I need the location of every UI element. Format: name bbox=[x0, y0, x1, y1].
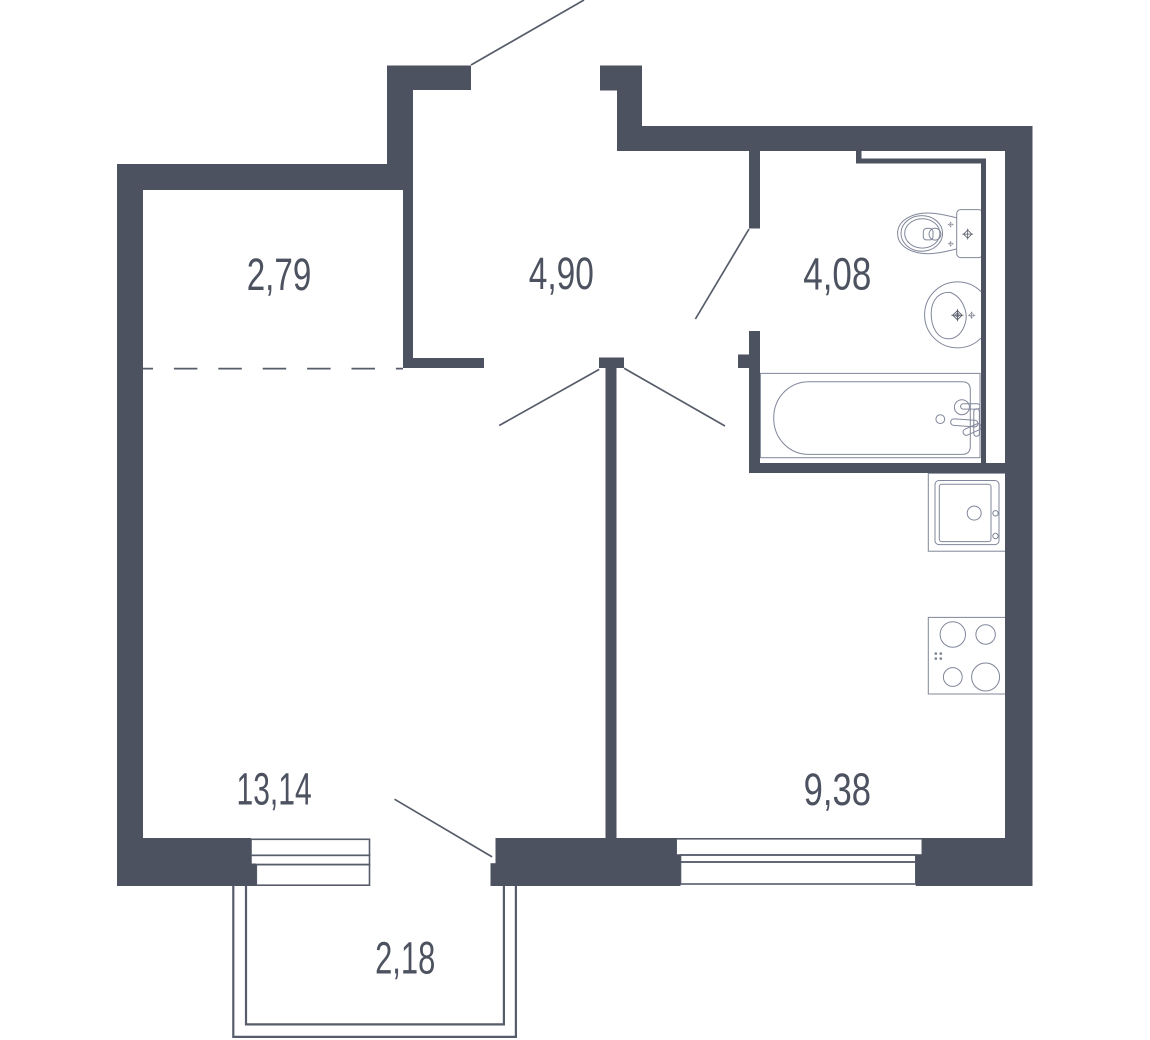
svg-text:4,90: 4,90 bbox=[529, 248, 594, 299]
svg-text:2,79: 2,79 bbox=[247, 249, 312, 300]
svg-text:9,38: 9,38 bbox=[804, 764, 871, 815]
svg-text:13,14: 13,14 bbox=[237, 764, 312, 815]
svg-text:4,08: 4,08 bbox=[803, 249, 871, 300]
svg-text:2,18: 2,18 bbox=[375, 933, 435, 984]
